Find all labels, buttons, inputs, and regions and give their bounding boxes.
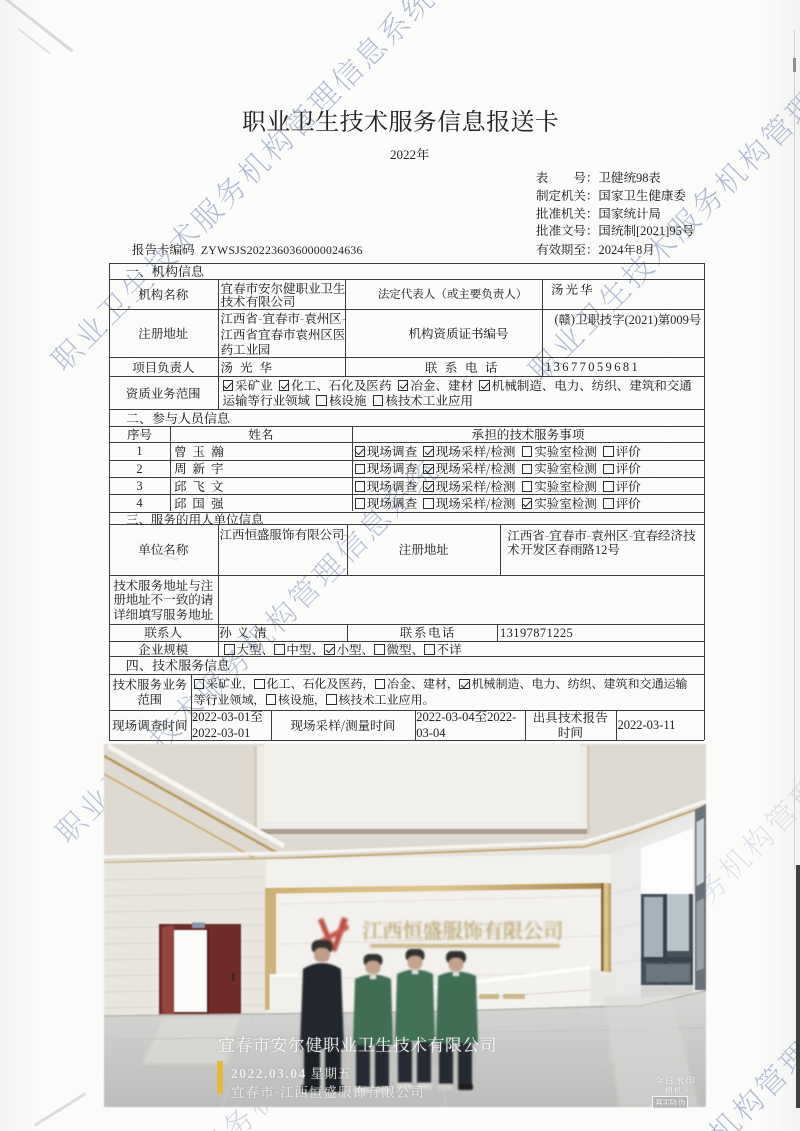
svg-text:江西恒盛服饰有限公司: 江西恒盛服饰有限公司 [362,914,563,944]
